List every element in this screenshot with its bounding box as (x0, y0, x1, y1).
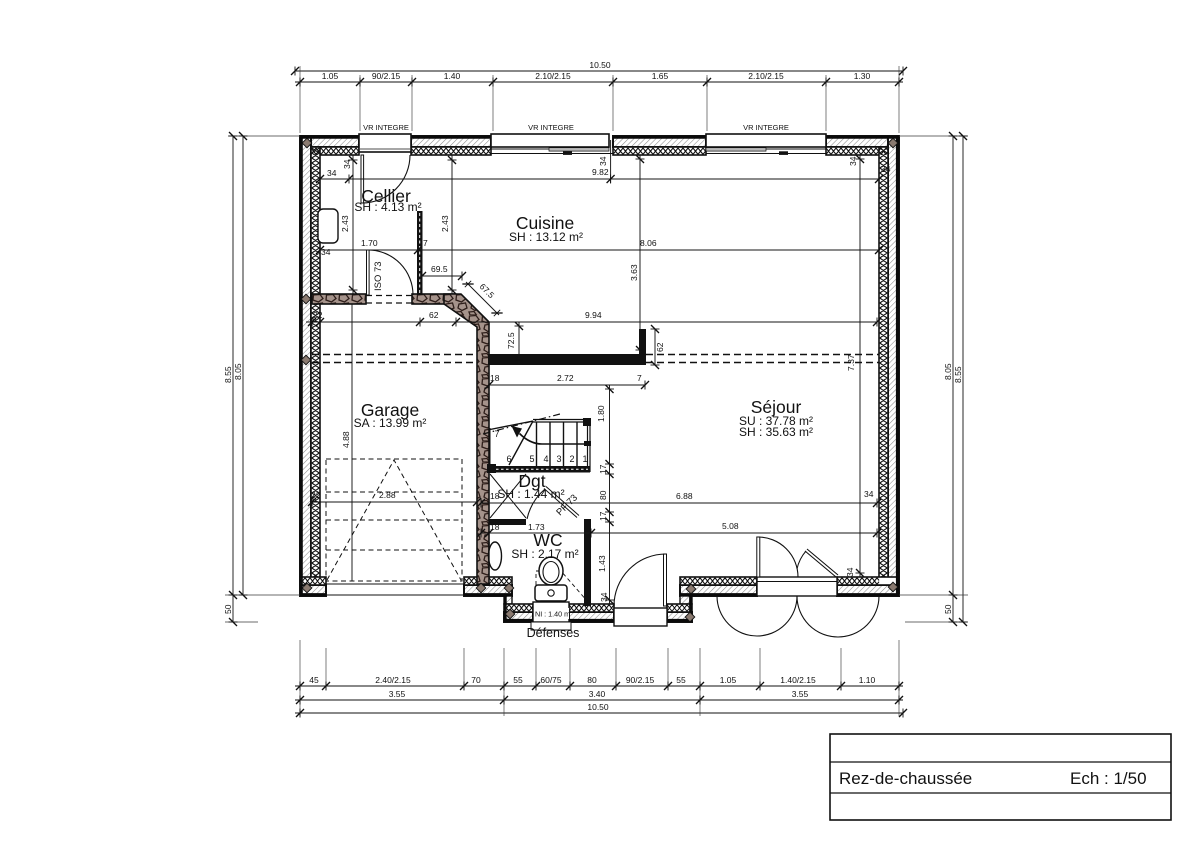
svg-text:2.72: 2.72 (557, 373, 574, 383)
svg-text:80: 80 (587, 675, 597, 685)
svg-text:22: 22 (311, 490, 321, 500)
svg-text:SH : 2.17 m²: SH : 2.17 m² (511, 547, 578, 561)
svg-text:ISO 73: ISO 73 (373, 261, 384, 291)
svg-text:55: 55 (513, 675, 523, 685)
svg-text:34: 34 (342, 159, 352, 169)
svg-text:9.94: 9.94 (585, 310, 602, 320)
svg-text:VR INTEGRE: VR INTEGRE (743, 123, 789, 132)
svg-text:2.43: 2.43 (340, 215, 350, 232)
svg-text:7.37: 7.37 (846, 354, 856, 371)
svg-text:50: 50 (223, 604, 233, 614)
svg-text:62: 62 (429, 310, 439, 320)
svg-text:34: 34 (864, 489, 874, 499)
svg-text:90/2.15: 90/2.15 (372, 71, 401, 81)
svg-text:1.05: 1.05 (720, 675, 737, 685)
svg-text:10.50: 10.50 (589, 60, 611, 70)
svg-text:1.43: 1.43 (597, 555, 607, 572)
svg-text:10.50: 10.50 (587, 702, 609, 712)
svg-text:6: 6 (506, 454, 511, 464)
svg-text:Rez-de-chaussée: Rez-de-chaussée (839, 769, 972, 788)
svg-text:VR INTEGRE: VR INTEGRE (363, 123, 409, 132)
svg-text:34: 34 (845, 567, 855, 577)
svg-text:45: 45 (309, 675, 319, 685)
svg-text:6.88: 6.88 (676, 491, 693, 501)
svg-text:34: 34 (599, 592, 609, 602)
svg-text:2.10/2.15: 2.10/2.15 (748, 71, 784, 81)
svg-text:VR INTEGRE: VR INTEGRE (528, 123, 574, 132)
svg-text:SH : 1.44 m²: SH : 1.44 m² (497, 487, 564, 501)
svg-text:90/2.15: 90/2.15 (626, 675, 655, 685)
svg-text:72.5: 72.5 (506, 332, 516, 349)
svg-text:7: 7 (637, 373, 642, 383)
svg-text:62: 62 (655, 342, 665, 352)
svg-text:22: 22 (313, 310, 323, 320)
svg-text:60/75: 60/75 (540, 675, 562, 685)
svg-text:7: 7 (423, 238, 428, 248)
svg-text:2.43: 2.43 (440, 215, 450, 232)
svg-text:69.5: 69.5 (431, 264, 448, 274)
svg-text:1.30: 1.30 (854, 71, 871, 81)
svg-text:3.40: 3.40 (589, 689, 606, 699)
svg-text:70: 70 (471, 675, 481, 685)
svg-text:2: 2 (569, 454, 574, 464)
svg-text:1.05: 1.05 (322, 71, 339, 81)
svg-text:34: 34 (327, 168, 337, 178)
svg-text:3.63: 3.63 (629, 264, 639, 281)
svg-text:34: 34 (881, 164, 891, 174)
svg-text:80: 80 (598, 490, 608, 500)
svg-text:34: 34 (598, 156, 608, 166)
svg-text:3.55: 3.55 (389, 689, 406, 699)
svg-text:SH : 13.12 m²: SH : 13.12 m² (509, 230, 583, 244)
svg-text:SH : 35.63 m²: SH : 35.63 m² (739, 425, 813, 439)
svg-text:1.40: 1.40 (444, 71, 461, 81)
svg-text:1.40/2.15: 1.40/2.15 (780, 675, 816, 685)
svg-text:4: 4 (543, 454, 548, 464)
svg-text:1.80: 1.80 (596, 405, 606, 422)
svg-text:3: 3 (556, 454, 561, 464)
svg-text:18: 18 (490, 522, 500, 532)
svg-text:7: 7 (494, 429, 499, 439)
svg-text:4.88: 4.88 (341, 431, 351, 448)
svg-text:1: 1 (582, 454, 587, 464)
svg-text:Défenses: Défenses (527, 626, 580, 640)
svg-text:8.05: 8.05 (943, 363, 953, 380)
svg-text:8.05: 8.05 (233, 363, 243, 380)
svg-text:SA : 13.99 m²: SA : 13.99 m² (354, 416, 427, 430)
svg-text:1.70: 1.70 (361, 238, 378, 248)
svg-text:17: 17 (598, 464, 608, 474)
svg-text:9.82: 9.82 (592, 167, 609, 177)
svg-text:5: 5 (529, 454, 534, 464)
svg-text:55: 55 (676, 675, 686, 685)
svg-text:34: 34 (321, 247, 331, 257)
svg-text:2.10/2.15: 2.10/2.15 (535, 71, 571, 81)
svg-text:18: 18 (490, 373, 500, 383)
svg-text:8.55: 8.55 (223, 366, 233, 383)
svg-text:3.55: 3.55 (792, 689, 809, 699)
svg-text:34: 34 (848, 156, 858, 166)
svg-text:8.06: 8.06 (640, 238, 657, 248)
svg-text:1.10: 1.10 (859, 675, 876, 685)
svg-text:5.08: 5.08 (722, 521, 739, 531)
svg-text:NI : 1.40 m: NI : 1.40 m (535, 610, 570, 619)
svg-text:8.55: 8.55 (953, 366, 963, 383)
svg-text:17: 17 (598, 511, 608, 521)
svg-text:Ech : 1/50: Ech : 1/50 (1070, 769, 1147, 788)
svg-text:SH : 4.13 m²: SH : 4.13 m² (354, 200, 421, 214)
svg-text:2.88: 2.88 (379, 490, 396, 500)
svg-text:1.65: 1.65 (652, 71, 669, 81)
svg-text:50: 50 (943, 604, 953, 614)
svg-text:2.40/2.15: 2.40/2.15 (375, 675, 411, 685)
